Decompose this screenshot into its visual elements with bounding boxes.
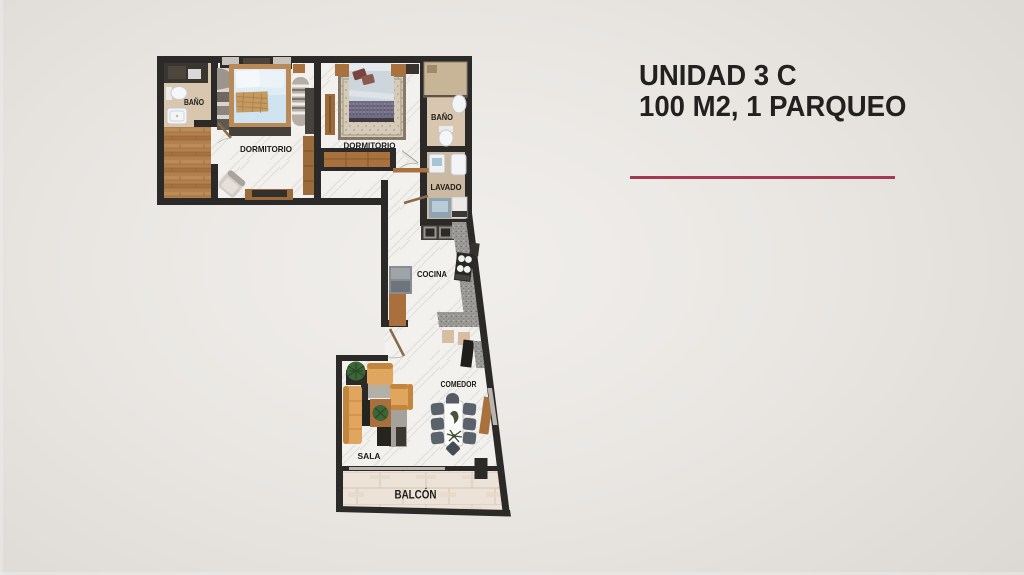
svg-text:SALA: SALA: [358, 451, 381, 461]
svg-text:BAÑO: BAÑO: [184, 98, 204, 107]
svg-text:BAÑO: BAÑO: [431, 113, 453, 122]
svg-text:DORMITORIO: DORMITORIO: [240, 144, 292, 154]
svg-text:DORMITORIO: DORMITORIO: [344, 141, 396, 151]
svg-text:LAVADO: LAVADO: [431, 183, 462, 192]
svg-text:COMEDOR: COMEDOR: [441, 380, 477, 389]
svg-text:COCINA: COCINA: [417, 270, 447, 279]
svg-text:BALCÓN: BALCÓN: [395, 487, 437, 502]
